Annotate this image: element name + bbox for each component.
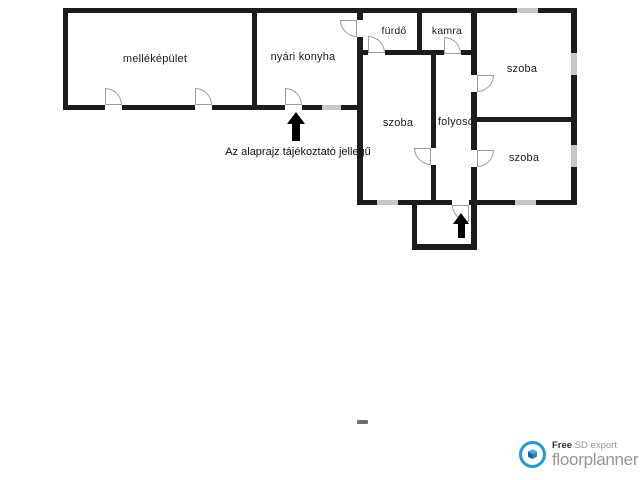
- house-left-wall-seg: [357, 37, 363, 205]
- porch-bottom-wall: [412, 244, 477, 250]
- left-building-top-wall: [63, 8, 363, 13]
- house-top-wall-seg: [357, 8, 517, 13]
- room-label-szoba-bottom-right: szoba: [509, 152, 539, 164]
- left-building-bottom-wall-seg: [63, 105, 105, 110]
- szoba-divider-wall: [477, 117, 571, 122]
- left-building-divider-wall: [252, 8, 257, 110]
- szoba-folyoso-divider-seg: [431, 165, 436, 205]
- left-building-bottom-wall-seg: [122, 105, 195, 110]
- porch-left-wall: [412, 205, 417, 245]
- house-bottom-window: [515, 200, 536, 205]
- mellekepulet-door-1-icon: [105, 88, 122, 105]
- szoba-folyoso-divider-seg: [431, 50, 436, 148]
- room-label-furdo: fürdő: [382, 25, 407, 37]
- szoba-bottom-right-window: [571, 145, 577, 167]
- kamra-door-icon: [444, 37, 461, 54]
- nyari-konyha-entrance-arrow-stem: [292, 123, 300, 141]
- house-right-wall-seg: [571, 75, 577, 145]
- disclaimer-text: Az alaprajz tájékoztató jellegű: [225, 146, 371, 158]
- house-bottom-wall-seg: [536, 200, 577, 205]
- house-right-wall-seg: [571, 8, 577, 53]
- nyari-konyha-entry-door-icon: [285, 88, 302, 105]
- szoba-bottom-right-door-icon: [477, 150, 494, 167]
- house-bottom-wall-seg: [357, 200, 377, 205]
- house-top-window: [517, 8, 538, 13]
- szoba-top-right-door-icon: [477, 75, 494, 92]
- mellekepulet-door-2-icon: [195, 88, 212, 105]
- room-label-szoba-middle: szoba: [383, 117, 413, 129]
- left-building-bottom-wall-seg: [302, 105, 322, 110]
- tiny-watermark-artifact: [357, 420, 368, 424]
- floorplanner-logo: Free SD export floorplanner: [519, 441, 638, 468]
- central-vertical-wall-seg: [471, 167, 477, 205]
- floorplan-page: melléképület nyári konyha fürdő kamra sz…: [0, 0, 640, 480]
- szoba-top-right-window: [571, 53, 577, 75]
- brand-name: floorplanner: [552, 451, 638, 468]
- porch-right-wall: [471, 205, 477, 245]
- left-building-bottom-wall-seg: [212, 105, 285, 110]
- house-bottom-wall-seg: [398, 200, 452, 205]
- house-left-wall-seg: [357, 8, 363, 20]
- szoba-middle-window: [377, 200, 398, 205]
- room-label-mellekepulet: melléképület: [123, 53, 187, 65]
- furdo-kamra-bottom-wall-seg: [357, 50, 368, 55]
- central-vertical-wall-seg: [471, 8, 477, 75]
- floorplanner-glyph-icon: [525, 447, 540, 462]
- left-building-left-wall: [63, 8, 68, 110]
- szoba-middle-door-icon: [414, 148, 431, 165]
- footer-text: Free SD export floorplanner: [552, 441, 638, 468]
- room-label-kamra: kamra: [432, 25, 462, 37]
- room-label-nyari-konyha: nyári konyha: [271, 51, 336, 63]
- floorplanner-logo-icon: [519, 441, 546, 468]
- room-label-folyoso: folyosó: [438, 116, 474, 128]
- furdo-kamra-divider-wall: [417, 8, 422, 55]
- nyari-konyha-furdo-door-icon: [340, 20, 357, 37]
- room-label-szoba-top-right: szoba: [507, 63, 537, 75]
- nyari-konyha-window: [322, 105, 341, 110]
- main-entrance-arrow-stem: [458, 223, 465, 238]
- furdo-door-icon: [368, 36, 385, 53]
